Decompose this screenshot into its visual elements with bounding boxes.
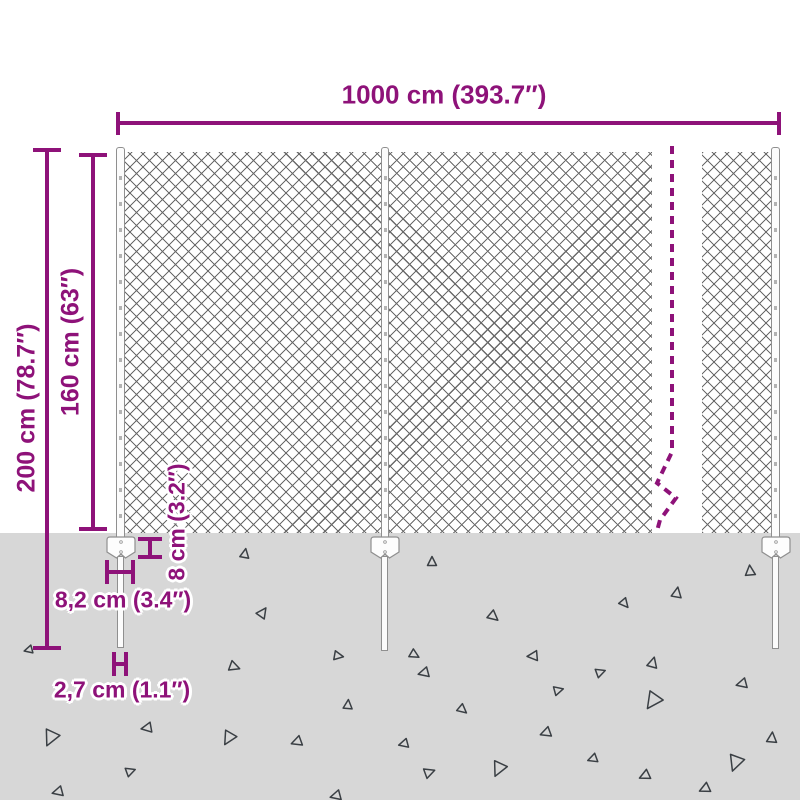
fence-dimension-diagram: 1000 cm (393.7″) 200 cm (78.7″) 160 cm (… (0, 0, 800, 800)
fence-post-middle (381, 147, 389, 538)
stake-width-dimension-label: 2,7 cm (1.1″) (54, 677, 190, 704)
fence-break-line (657, 146, 676, 531)
total-height-dimension-label: 200 cm (78.7″) (13, 323, 42, 492)
anchor-width-dimension-label: 8,2 cm (3.4″) (55, 587, 191, 614)
ground-stake-right (772, 556, 779, 649)
fence-post-left (116, 147, 125, 538)
ground-stake-middle (381, 556, 388, 651)
fence-mesh-panel-right (702, 152, 777, 533)
width-dimension-line (118, 112, 779, 135)
fence-post-right (771, 147, 780, 538)
anchor-depth-dimension-label: 8 cm (3.2″) (164, 463, 191, 580)
width-dimension-label: 1000 cm (393.7″) (342, 80, 547, 111)
fence-height-dimension-label: 160 cm (63″) (57, 268, 86, 416)
